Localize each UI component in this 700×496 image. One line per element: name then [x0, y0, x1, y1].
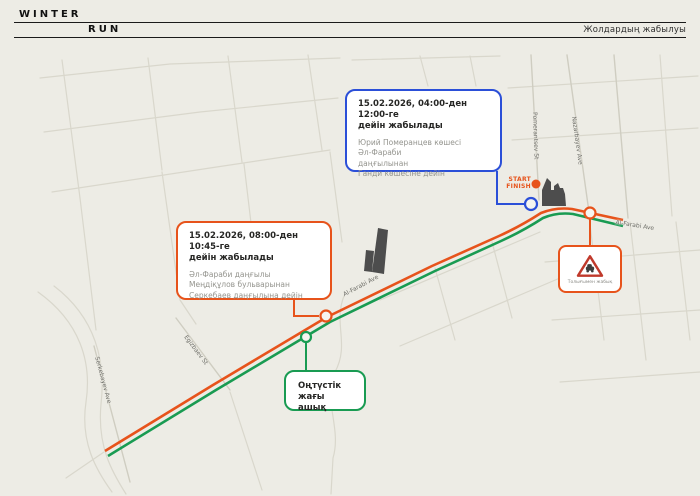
start-finish-label: START FINISH — [494, 176, 531, 190]
callout-road-closed-sign: Толығымен жабық — [558, 245, 622, 293]
buildings — [364, 178, 566, 274]
callout-blue-closure: 15.02.2026, 04:00-ден 12:00-ге дейін жаб… — [345, 89, 502, 172]
esentai-tower-icon — [372, 228, 388, 274]
orange-closure-body: Әл-Фараби даңғылы Меңдіқұлов бульварынан… — [189, 270, 319, 301]
road-closed-caption: Толығымен жабық — [568, 280, 613, 285]
orange-closure-title: 15.02.2026, 08:00-ден 10:45-ге дейін жаб… — [189, 231, 319, 264]
start-finish-dot — [532, 180, 541, 189]
orange-route-marker — [321, 311, 332, 322]
warning-triangle-car-icon — [576, 254, 604, 278]
green-route-marker — [301, 332, 311, 342]
blue-closure-body: Юрий Померанцев көшесі Әл-Фараби даңғылы… — [358, 138, 489, 179]
sign-route-marker — [585, 208, 596, 219]
south-side-open-text: Оңтүстік жағы ашық — [298, 381, 352, 414]
blue-route-marker — [525, 198, 537, 210]
callout-orange-closure: 15.02.2026, 08:00-ден 10:45-ге дейін жаб… — [176, 221, 332, 300]
blue-closure-title: 15.02.2026, 04:00-ден 12:00-ге дейін жаб… — [358, 99, 489, 132]
skyline-icon — [542, 178, 566, 206]
poster-canvas: WINTER RUN Жолдардың жабылуы — [0, 0, 700, 496]
orange-callout-connector — [294, 299, 319, 316]
callout-south-side-open: Оңтүстік жағы ашық — [284, 370, 366, 411]
